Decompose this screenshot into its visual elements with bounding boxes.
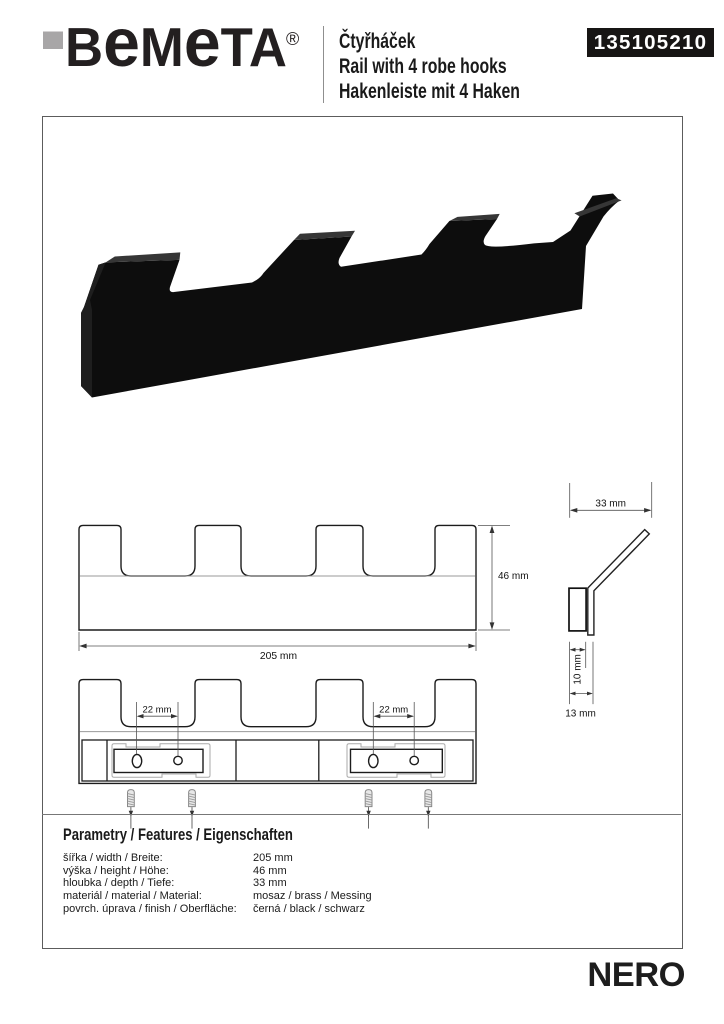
svg-text:33 mm: 33 mm	[595, 499, 626, 510]
svg-text:205 mm: 205 mm	[260, 651, 297, 662]
svg-text:22 mm: 22 mm	[142, 705, 171, 716]
svg-text:22 mm: 22 mm	[379, 705, 408, 716]
svg-text:46 mm: 46 mm	[498, 571, 529, 582]
svg-text:10 mm: 10 mm	[573, 654, 584, 685]
svg-text:13 mm: 13 mm	[565, 709, 596, 720]
